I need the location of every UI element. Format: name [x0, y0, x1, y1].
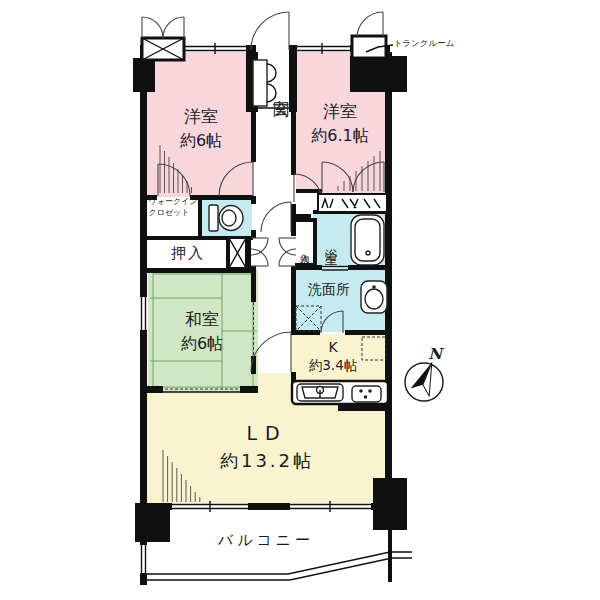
monoire-doors	[279, 238, 296, 266]
hall-storage-doors	[251, 238, 268, 266]
washitsu-label: 和室	[185, 311, 219, 328]
monoire-label: 物入	[300, 240, 309, 249]
balcony-railing	[140, 552, 412, 580]
oshiire-label: 押入	[171, 246, 205, 261]
wic-label: ウォークイン クロゼット	[149, 198, 198, 217]
floor-plan-drawing	[0, 0, 600, 600]
floor-plan: 玄関 洋室 約6帖 洋室 約6.1帖 ウォークイン クロゼット 押入 和室 約6…	[0, 0, 600, 600]
stove-icon	[352, 386, 381, 402]
toilet-door	[261, 202, 291, 232]
window-entrance-opening	[256, 45, 289, 52]
balcony-label: バルコニー	[218, 533, 314, 548]
western2-size: 約6.1帖	[311, 128, 368, 144]
washroom-label: 洗面所	[308, 282, 350, 296]
compass-n-label: N	[428, 347, 442, 362]
kitchen-counter	[292, 381, 388, 404]
kitchen-size: 約3.4帖	[309, 359, 357, 373]
living-size: 約13.2帖	[220, 452, 314, 470]
western1-size: 約6帖	[180, 133, 222, 149]
washitsu-size: 約6帖	[181, 336, 223, 352]
western2-label: 洋室	[323, 103, 357, 120]
trunk-room-box	[352, 12, 393, 58]
trunk-room-label: トランクルーム	[394, 39, 455, 48]
window-balcony-left	[140, 545, 147, 573]
entrance-door	[251, 12, 289, 50]
kitchen-sink-icon	[297, 384, 343, 401]
washbasin-icon	[361, 281, 387, 313]
entrance-label: 玄関	[273, 79, 289, 95]
western1-label: 洋室	[184, 108, 218, 125]
window-washitsu-left	[140, 297, 147, 330]
toilet-icon	[209, 205, 243, 231]
north-arrow	[405, 359, 443, 401]
bath-label: 浴室	[325, 232, 338, 245]
hanger-closet	[318, 194, 387, 212]
storage-box	[229, 238, 246, 268]
living-label: LD	[246, 424, 287, 443]
kitchen-label: K	[328, 340, 337, 354]
bathtub-icon	[351, 215, 384, 265]
meter-box	[142, 17, 184, 60]
